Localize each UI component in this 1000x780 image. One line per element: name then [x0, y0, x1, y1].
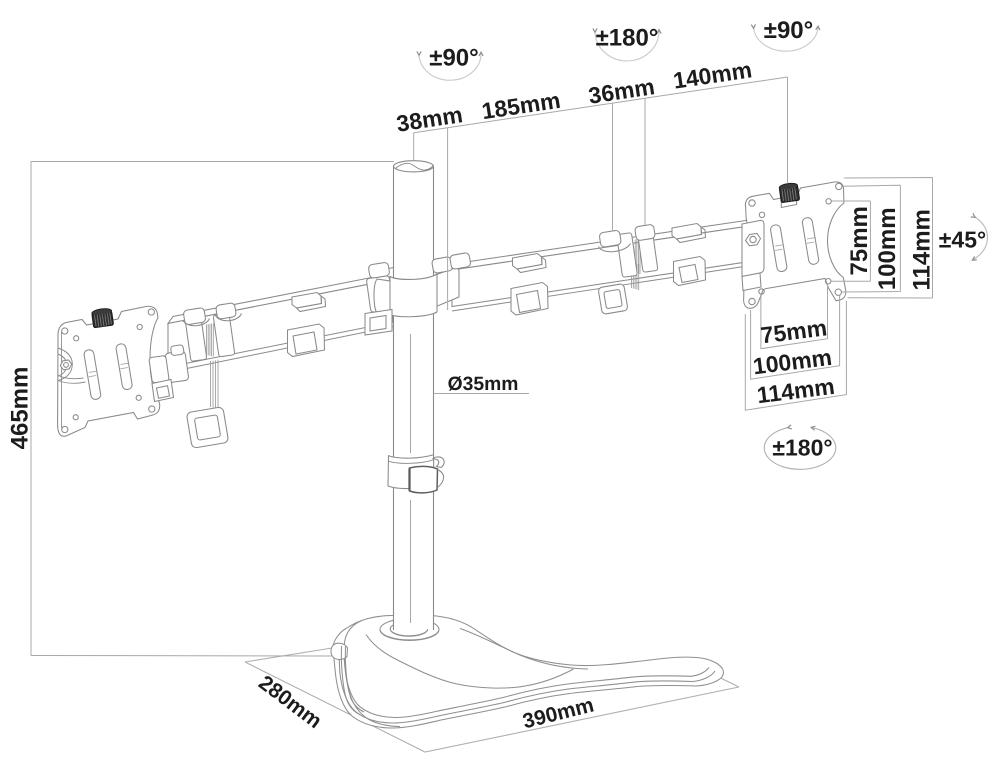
svg-text:75mm: 75mm — [759, 314, 828, 348]
svg-text:465mm: 465mm — [6, 367, 33, 450]
svg-text:140mm: 140mm — [671, 56, 753, 93]
svg-text:75mm: 75mm — [846, 206, 873, 275]
svg-text:280mm: 280mm — [254, 671, 326, 733]
svg-text:±90°: ±90° — [429, 45, 478, 72]
svg-text:185mm: 185mm — [480, 87, 562, 124]
svg-text:36mm: 36mm — [587, 73, 657, 109]
svg-text:100mm: 100mm — [874, 207, 901, 290]
svg-text:±90°: ±90° — [764, 17, 813, 44]
svg-text:114mm: 114mm — [755, 373, 836, 408]
svg-text:Ø35mm: Ø35mm — [448, 374, 519, 395]
svg-text:38mm: 38mm — [395, 101, 465, 137]
svg-text:±180°: ±180° — [772, 435, 832, 461]
svg-text:±45°: ±45° — [939, 227, 986, 253]
svg-text:114mm: 114mm — [908, 209, 935, 290]
svg-text:±180°: ±180° — [596, 25, 659, 52]
